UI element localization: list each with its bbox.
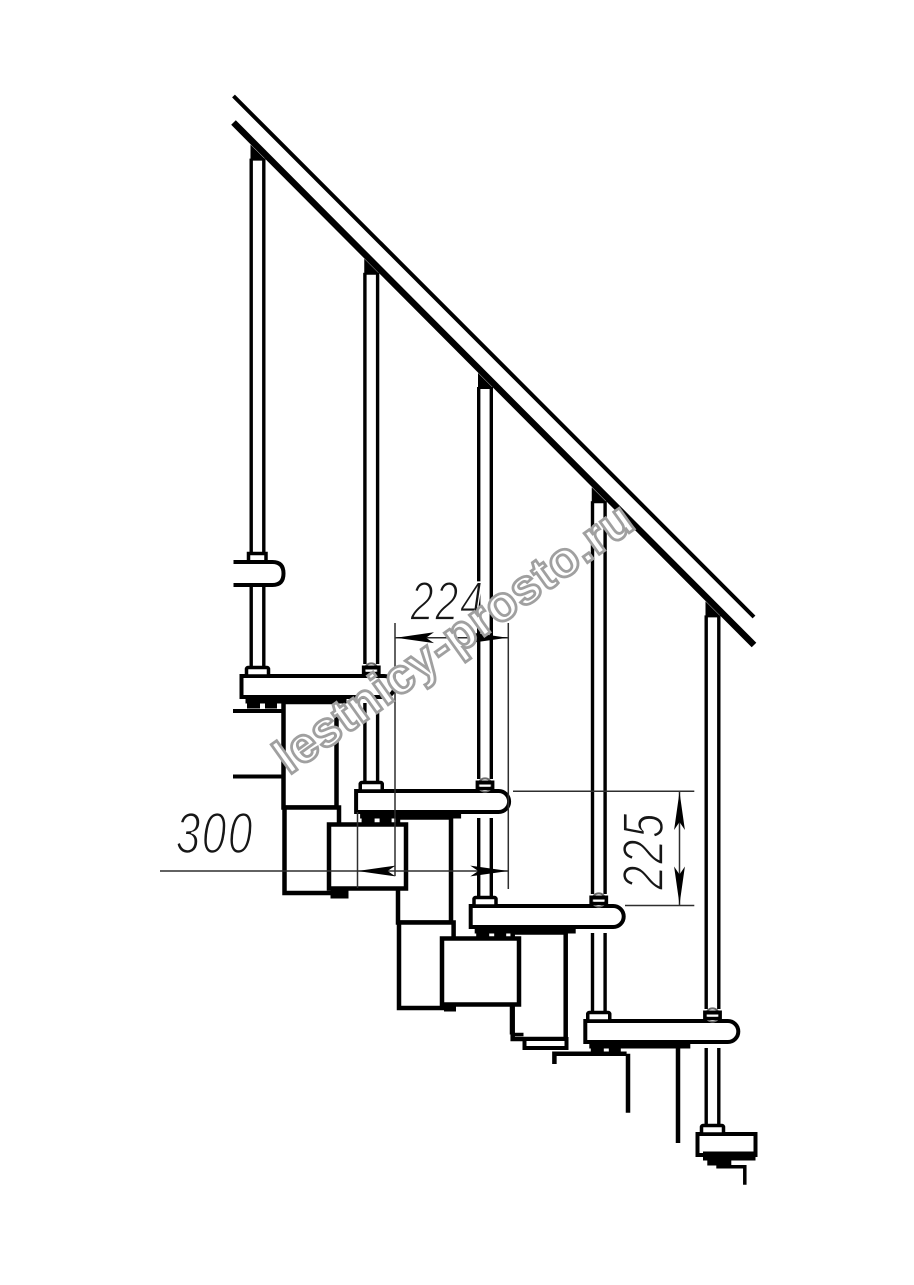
- svg-text:300: 300: [176, 801, 254, 866]
- svg-text:225: 225: [611, 812, 676, 891]
